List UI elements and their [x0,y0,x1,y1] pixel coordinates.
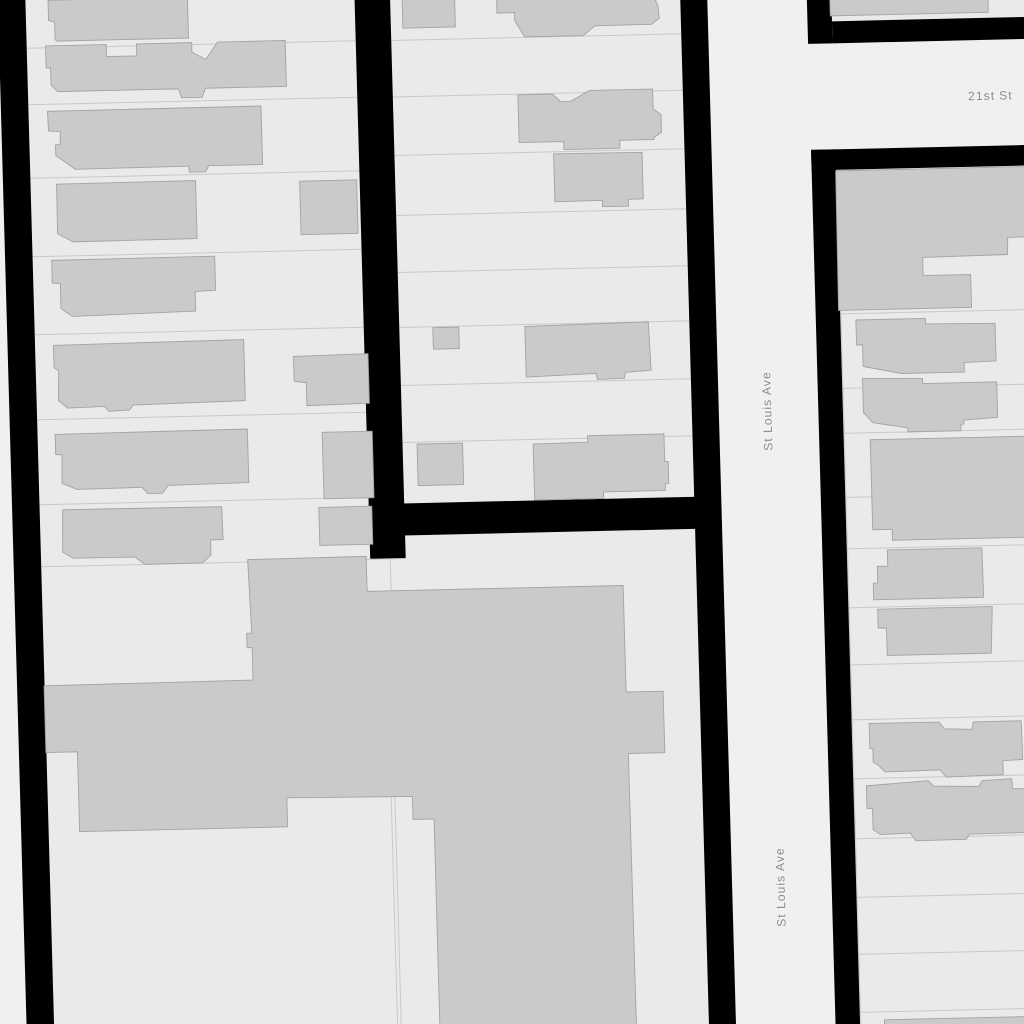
svg-text:St Louis Ave: St Louis Ave [773,847,789,927]
svg-text:St Louis Ave: St Louis Ave [759,371,775,451]
svg-text:21st St: 21st St [968,88,1013,103]
